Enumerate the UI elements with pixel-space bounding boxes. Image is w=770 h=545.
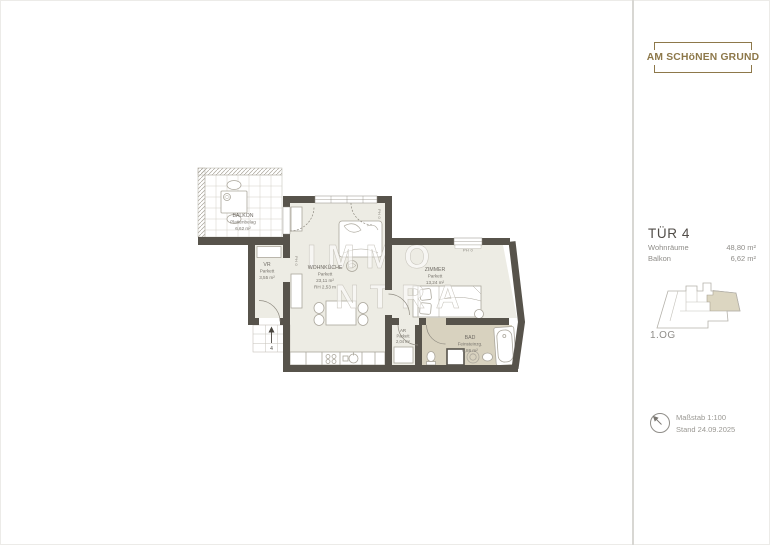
unit-info: TÜR 4 Wohnräume 48,80 m² Balkon 6,62 m² [648,226,756,263]
svg-text:WOHNKÜCHE: WOHNKÜCHE [308,264,343,271]
svg-text:13,24 m²: 13,24 m² [426,280,445,285]
unit-row-balkon: Balkon 6,62 m² [648,254,756,263]
parapet-label-balcony-door: PH 0 [294,256,299,267]
kitchen-counter [290,352,385,365]
cabinet [291,274,302,308]
svg-text:6,86 m²: 6,86 m² [462,348,478,353]
brand-logo: AM SCHöNEN GRUND [646,42,760,73]
north-compass-icon [648,411,672,435]
svg-text:Parkett: Parkett [318,272,333,277]
svg-text:Feinsteinzg.: Feinsteinzg. [458,342,483,347]
unit-row-label: Wohnräume [648,243,689,252]
parapet-label-zimmer-window: PH 0 [463,248,474,253]
svg-text:3,55 m²: 3,55 m² [259,275,275,280]
ar-shelf [394,347,413,363]
logo-bracket-top [654,42,752,50]
unit-row-value: 6,62 m² [731,254,756,263]
svg-text:BAD: BAD [465,335,476,341]
brand-name: AM SCHöNEN GRUND [646,52,760,63]
brochure-page: 4 [0,0,770,545]
entrance-number: 4 [270,346,273,352]
floorplan-svg: 4 [185,150,540,390]
svg-text:Parkett: Parkett [397,334,411,339]
unit-row-label: Balkon [648,254,671,263]
balcony-railing-top [198,168,282,175]
svg-text:RH 2,53 m: RH 2,53 m [314,285,336,290]
svg-text:BALKON: BALKON [232,213,253,219]
svg-text:23,11 m²: 23,11 m² [316,278,334,283]
svg-text:Parkett: Parkett [260,269,275,274]
date-text: Stand 24.09.2025 [676,424,735,436]
svg-text:AR: AR [400,328,406,333]
sidebar-divider [632,0,634,545]
balcony-door [283,207,290,234]
vr-closet [257,247,281,258]
svg-text:ZIMMER: ZIMMER [425,267,446,273]
unit-row-wohnraeume: Wohnräume 48,80 m² [648,243,756,252]
wardrobe [291,207,302,231]
toilet [427,352,435,362]
floor-label: 1.OG [650,330,676,341]
unit-title: TÜR 4 [648,226,756,241]
svg-text:2,04 m²: 2,04 m² [396,339,411,344]
svg-text:Plattenbelag: Plattenbelag [230,220,256,225]
plan-meta: Maßstab 1:100 Stand 24.09.2025 [676,412,735,436]
svg-text:VR: VR [263,262,270,268]
svg-text:Parkett: Parkett [428,274,443,279]
side-table [475,310,484,319]
unit-row-value: 48,80 m² [726,243,756,252]
sink [483,353,493,361]
scale-text: Maßstab 1:100 [676,412,735,424]
floorplan: 4 [185,150,540,390]
logo-bracket-bottom [654,65,752,73]
balcony-railing-left [198,168,205,237]
svg-text:6,62 m²: 6,62 m² [235,226,251,231]
key-map-highlighted-unit [707,291,740,312]
parapet-label-terrace-window: PH 0 [377,209,382,220]
watermark-line2: NTRA [335,278,471,315]
toilet-tank [427,362,436,366]
